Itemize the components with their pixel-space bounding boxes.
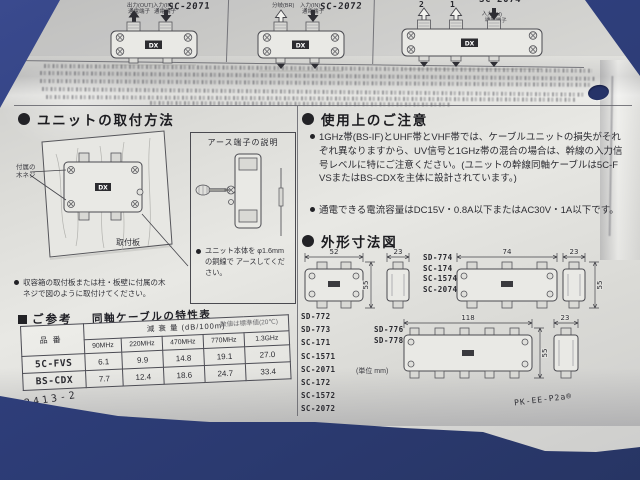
section-top-rule [14,105,632,106]
panel3-model-number: SC-2074 [479,0,521,5]
caution-item-2-text: 通電できる電流容量はDC15V・0.8A以下またはAC30V・1A以下です。 [319,204,619,218]
fine-print-line [46,95,576,102]
caution-item-1: 1GHz帯(BS-IF)とUHF帯とVHF帯では、ケーブルユニットの損失がそれぞ… [310,131,624,186]
dx-logo: DX [149,42,159,49]
section-bullet-icon [302,113,314,125]
model-list-fig2: SD-774 SC-174 SC-1574 SC-2074 [423,253,457,295]
value-cell: 33.4 [245,362,291,381]
value-cell: 12.4 [122,367,164,386]
list-bullet-icon [310,207,315,212]
model-item: SC-1574 [423,274,457,285]
screw-callout: 付属の 木ネジ [16,164,36,180]
dim-width-label: 74 [503,248,512,256]
unit-diagram-sc2074: DX [398,6,548,70]
model-item: SC-1572 [301,389,335,402]
model-list-fig1: SD-772 SD-773 SC-171 SC-1571 SC-2071 SC-… [301,310,335,416]
value-cell: 9.9 [122,350,164,369]
value-cell: 27.0 [245,345,291,364]
unit-diagram-sc2071: DX [108,8,200,66]
col-product-header: 品番 [21,324,85,357]
board-label: 取付板 [116,237,140,248]
dim-height-label: 55 [362,281,370,290]
installation-diagram: DX [12,126,190,286]
dim-height-label: 55 [541,349,549,358]
caution-item-2: 通電できる電流容量はDC15V・0.8A以下またはAC30V・1A以下です。 [310,204,624,218]
unit-note: (単位 mm) [356,366,388,376]
dx-logo: DX [296,42,306,49]
model-item: SC-174 [423,264,457,275]
list-bullet-icon [196,249,201,254]
model-item: SC-2074 [423,285,457,296]
dimension-figure-small: 52 55 23 [303,246,415,312]
instruction-sheet: 出力(OUT) 通電端子 入力(IN) 通電端子 SC-2071 DX 分岐(B… [0,0,640,480]
panel-divider-2 [372,0,375,64]
cable-spec-table: 品番 減 衰 量 (dB/100m) 90MHz 220MHz 470MHz 7… [20,314,292,391]
earth-terminal-diagram [195,150,291,242]
dim-depth-label: 23 [561,314,570,322]
dim-height-label: 55 [596,281,604,290]
value-cell: 19.1 [204,347,246,366]
model-item: SC-2071 [301,363,335,376]
column-divider [297,106,298,416]
mount-note: 収容箱の取付板または柱・板壁に付属の木ネジで図のように取付けてください。 [14,277,172,300]
unit-diagram-sc2072: DX [255,8,347,72]
fine-print-line [40,79,592,87]
dim-depth-label: 23 [570,248,579,256]
caution-item-1-text: 1GHz帯(BS-IF)とUHF帯とVHF帯では、ケーブルユニットの損失がそれぞ… [319,131,624,186]
value-cell: 24.7 [204,364,246,383]
part-code: PK-EE-P2a® [514,391,573,407]
earth-terminal-box: アース端子の説明 ユニット本体を φ1.6mmの銅線で アースしてください。 [190,132,296,304]
doc-number: 2413-2 [23,390,78,409]
photo-scene: 出力(OUT) 通電端子 入力(IN) 通電端子 SC-2071 DX 分岐(B… [0,0,640,480]
value-cell: 18.6 [163,365,205,384]
screw-label-line1: 付属の [16,164,36,172]
cable-name-cell: BS-CDX [23,371,87,391]
panel-divider-1 [226,0,229,62]
caution-section-title: 使用上のご注意 [302,109,428,129]
model-item: SC-171 [301,336,335,349]
model-item: SC-2072 [301,402,335,415]
dim-depth-label: 23 [394,248,403,256]
value-cell: 6.1 [85,352,123,371]
earth-note: ユニット本体を φ1.6mmの銅線で アースしてください。 [196,246,291,278]
caution-title-text: 使用上のご注意 [321,109,428,129]
value-cell: 14.8 [163,349,205,368]
list-bullet-icon [310,134,315,139]
screw-label-line2: 木ネジ [16,172,36,180]
model-item: SD-772 [301,310,335,323]
value-cell: 7.7 [86,369,124,388]
earth-note-text: ユニット本体を φ1.6mmの銅線で アースしてください。 [205,246,291,278]
list-bullet-icon [14,280,19,285]
model-item: SC-172 [301,376,335,389]
earth-box-title: アース端子の説明 [191,137,295,148]
model-item: SD-773 [301,323,335,336]
mount-note-text: 収容箱の取付板または柱・板壁に付属の木ネジで図のように取付けてください。 [23,277,172,300]
dim-width-label: 52 [330,248,339,256]
dx-logo: DX [98,185,108,192]
model-item: SC-1571 [301,350,335,363]
section-square-icon [18,315,27,324]
dimension-figure-medium: 74 23 55 [455,246,605,312]
dx-logo: DX [465,40,475,47]
dimension-figure-large: 118 55 23 [400,312,586,384]
dim-width-label: 118 [461,314,474,322]
section-bullet-icon [18,113,30,125]
model-item: SD-774 [423,253,457,264]
